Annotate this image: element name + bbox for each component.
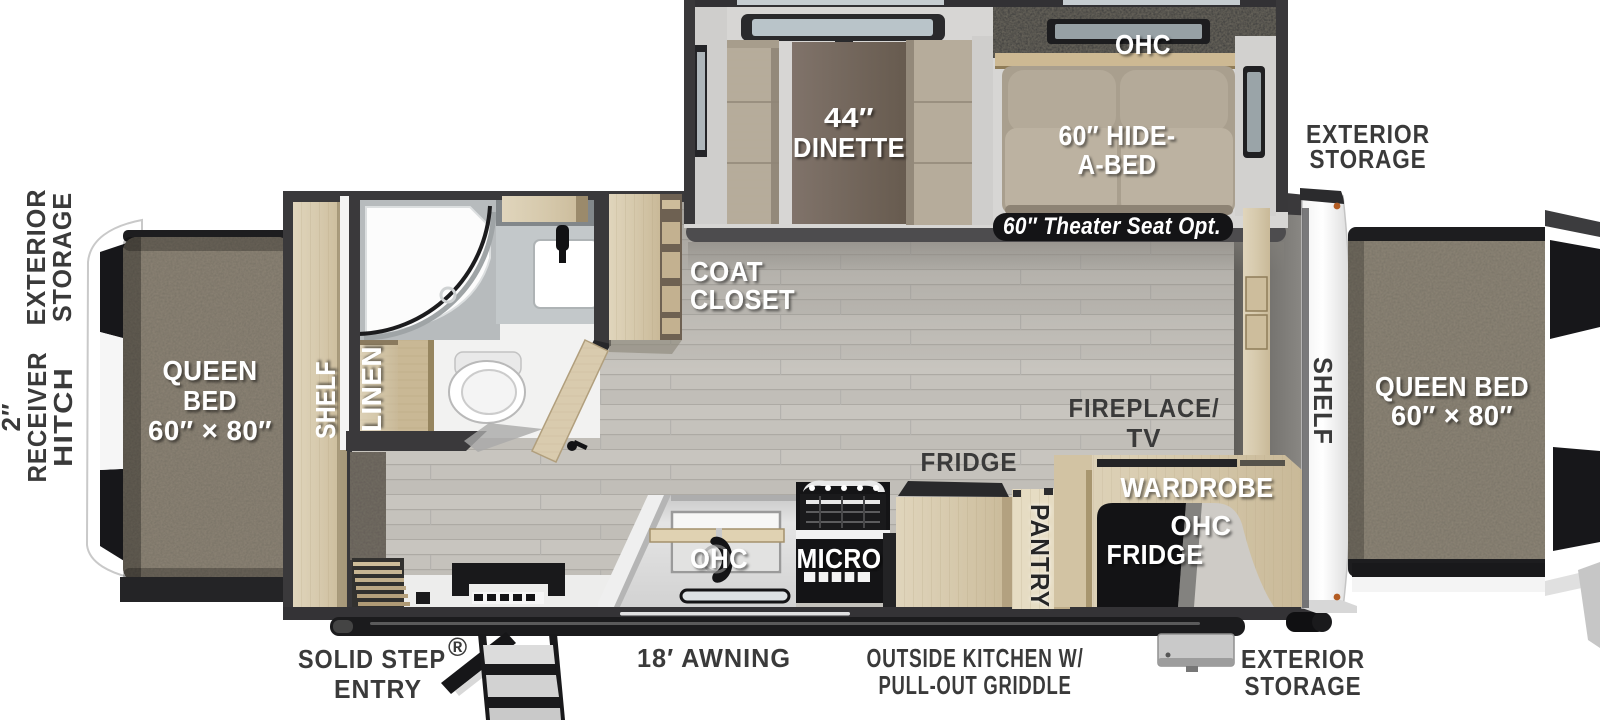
svg-text:18′ AWNING: 18′ AWNING — [637, 643, 791, 673]
svg-text:A-BED: A-BED — [1078, 149, 1157, 180]
svg-text:TV: TV — [1127, 423, 1162, 453]
svg-text:FIREPLACE/: FIREPLACE/ — [1069, 393, 1220, 423]
svg-text:CLOSET: CLOSET — [690, 284, 795, 315]
svg-text:OHC: OHC — [690, 543, 748, 574]
svg-text:60″ Theater Seat Opt.: 60″ Theater Seat Opt. — [1003, 213, 1221, 240]
svg-text:FRIDGE: FRIDGE — [921, 447, 1018, 477]
svg-text:60″ × 80″: 60″ × 80″ — [1391, 400, 1513, 431]
svg-text:MICRO: MICRO — [797, 543, 882, 574]
svg-text:SHELF: SHELF — [1308, 357, 1338, 445]
svg-text:COAT: COAT — [690, 256, 763, 287]
svg-text:EXTERIOR: EXTERIOR — [1241, 644, 1365, 674]
svg-text:BED: BED — [183, 385, 237, 416]
svg-text:OUTSIDE KITCHEN W/: OUTSIDE KITCHEN W/ — [867, 643, 1084, 673]
svg-text:OHC: OHC — [1171, 510, 1232, 541]
svg-text:PULL-OUT GRIDDLE: PULL-OUT GRIDDLE — [879, 670, 1072, 700]
svg-text:STORAGE: STORAGE — [1310, 144, 1427, 174]
svg-text:FRIDGE: FRIDGE — [1107, 539, 1204, 570]
svg-text:SHELF: SHELF — [310, 361, 341, 439]
svg-text:STORAGE: STORAGE — [1245, 671, 1362, 701]
svg-text:WARDROBE: WARDROBE — [1121, 472, 1274, 503]
svg-text:ENTRY: ENTRY — [334, 674, 422, 704]
svg-text:QUEEN: QUEEN — [163, 355, 258, 386]
svg-text:HITCH: HITCH — [48, 367, 78, 467]
svg-text:60″ HIDE-: 60″ HIDE- — [1059, 120, 1176, 151]
svg-text:OHC: OHC — [1115, 29, 1171, 60]
svg-text:SOLID STEP: SOLID STEP — [298, 644, 446, 674]
svg-text:PANTRY: PANTRY — [1025, 504, 1055, 608]
svg-text:LINEN: LINEN — [356, 346, 387, 432]
svg-text:DINETTE: DINETTE — [793, 132, 905, 163]
svg-text:QUEEN BED: QUEEN BED — [1375, 371, 1529, 402]
svg-text:®: ® — [448, 632, 468, 662]
svg-text:STORAGE: STORAGE — [47, 192, 77, 322]
svg-text:44″: 44″ — [824, 102, 874, 133]
svg-text:60″ × 80″: 60″ × 80″ — [148, 415, 272, 446]
